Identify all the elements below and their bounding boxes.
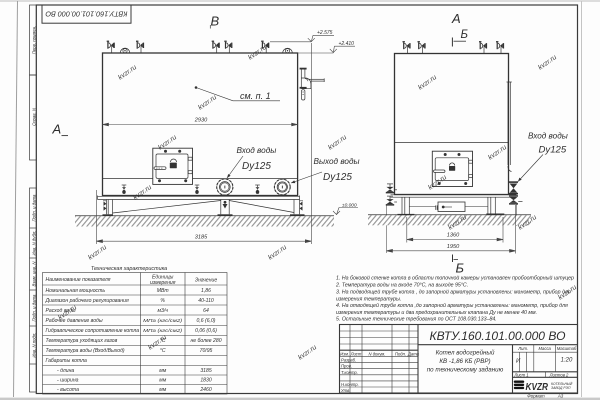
svg-text:- высота: - высота — [57, 387, 79, 393]
svg-text:Т.контр.: Т.контр. — [341, 370, 358, 375]
svg-text:1,86: 1,86 — [201, 288, 211, 294]
svg-text:Номинальная мощность: Номинальная мощность — [46, 288, 106, 294]
svg-text:Подп.: Подп. — [395, 351, 406, 356]
svg-text:Лит.: Лит. — [517, 346, 528, 351]
svg-text:Техническая характеристика: Техническая характеристика — [91, 266, 167, 272]
svg-text:м3/ч: м3/ч — [158, 308, 169, 314]
svg-text:Лист: Лист — [350, 351, 362, 356]
svg-text:1. На боковой стенке котла в: 1. На боковой стенке котла в области топ… — [336, 275, 574, 282]
svg-text:Справ. N: Справ. N — [31, 107, 36, 126]
svg-text:измерения: измерения — [150, 280, 176, 286]
svg-text:Взам. инв. N: Взам. инв. N — [31, 261, 36, 287]
svg-text:Подп. и дата: Подп. и дата — [31, 194, 36, 222]
svg-text:Изм.: Изм. — [340, 351, 349, 356]
svg-text:Н.контр.: Н.контр. — [341, 382, 359, 387]
svg-text:МВт: МВт — [157, 288, 169, 294]
svg-text:см. п. 1: см. п. 1 — [240, 91, 271, 101]
svg-text:1:20: 1:20 — [561, 358, 573, 364]
svg-text:В: В — [211, 14, 220, 29]
svg-text:МПа (кгс/см2): МПа (кгс/см2) — [143, 328, 183, 333]
svg-text:Инв. N дубл.: Инв. N дубл. — [31, 231, 36, 256]
svg-text:А: А — [451, 11, 461, 26]
svg-text:KVZR: KVZR — [526, 381, 549, 393]
svg-text:Разраб.: Разраб. — [341, 358, 356, 363]
svg-text:Б: Б — [461, 29, 469, 41]
svg-text:И: И — [516, 359, 521, 365]
svg-text:Гидравлическое сопротивление к: Гидравлическое сопротивление котла — [46, 328, 140, 334]
svg-text:Рабочее давление воды: Рабочее давление воды — [46, 318, 103, 324]
svg-text:Вход воды: Вход воды — [237, 146, 277, 155]
svg-text:1950: 1950 — [447, 244, 460, 250]
svg-text:Масштаб: Масштаб — [557, 346, 577, 351]
svg-text:4. На отводящей трубе котла ,: 4. На отводящей трубе котла ,до запорной… — [336, 302, 568, 309]
svg-text:64: 64 — [203, 308, 209, 314]
svg-text:Перв. примен.: Перв. примен. — [31, 26, 36, 55]
svg-text:Пров.: Пров. — [341, 364, 352, 369]
svg-text:Подп. и дата: Подп. и дата — [31, 294, 36, 322]
svg-text:Dy125: Dy125 — [323, 172, 352, 183]
svg-text:Наименование показателя: Наименование показателя — [46, 277, 111, 283]
svg-text:Температура уходящих газов: Температура уходящих газов — [46, 338, 118, 344]
svg-text:Котел водогрейный: Котел водогрейный — [436, 350, 495, 357]
svg-text:3185: 3185 — [200, 368, 211, 374]
svg-text:А: А — [52, 122, 62, 137]
svg-text:N докум.: N докум. — [369, 351, 386, 356]
svg-text:5. Остальные технические треб: 5. Остальные технические требования по О… — [336, 317, 497, 323]
svg-text:измерения температуры и два пр: измерения температуры и два предохраните… — [336, 310, 537, 316]
svg-text:3. На подводящей трубе котла: 3. На подводящей трубе котла , до запорн… — [336, 289, 571, 296]
svg-text:Выход воды: Выход воды — [314, 157, 360, 166]
svg-text:±0.000: ±0.000 — [342, 202, 357, 208]
svg-text:Инв. N подл.: Инв. N подл. — [31, 332, 36, 357]
svg-text:2. Температура воды на входе: 2. Температура воды на входе 70°С, на вы… — [335, 283, 468, 289]
svg-text:измерения температуры.: измерения температуры. — [336, 296, 401, 302]
svg-text:Температура воды (Вход/Выход): Температура воды (Вход/Выход) — [46, 348, 125, 354]
svg-text:1830: 1830 — [200, 378, 211, 384]
svg-text:Листов 2: Листов 2 — [549, 372, 569, 377]
svg-text:0,6 (6,0): 0,6 (6,0) — [197, 318, 216, 324]
svg-text:Формат: Формат — [527, 393, 545, 398]
svg-text:Dy125: Dy125 — [242, 161, 271, 172]
svg-text:мм: мм — [159, 378, 166, 384]
svg-text:+2.575: +2.575 — [317, 30, 333, 36]
svg-text:А3: А3 — [557, 393, 564, 398]
svg-text:КВ -1,86 КБ (РВР): КВ -1,86 КБ (РВР) — [439, 358, 490, 365]
svg-text:+2.410: +2.410 — [339, 41, 355, 47]
svg-text:2930: 2930 — [194, 118, 208, 124]
svg-text:Масса: Масса — [539, 346, 552, 351]
svg-text:- длина: - длина — [57, 368, 74, 374]
svg-text:Дата: Дата — [407, 351, 420, 356]
svg-text:Габариты котла: Габариты котла — [46, 358, 87, 364]
svg-text:°С: °С — [160, 348, 166, 354]
svg-text:Значение: Значение — [195, 278, 218, 284]
svg-text:мм: мм — [159, 387, 166, 393]
svg-text:- ширина: - ширина — [57, 378, 79, 384]
svg-text:не более 280: не более 280 — [190, 338, 221, 344]
svg-text:Вход воды: Вход воды — [528, 132, 568, 141]
svg-text:Dy125: Dy125 — [539, 145, 567, 156]
svg-text:Утв.: Утв. — [341, 388, 351, 393]
svg-text:по техническому заданию: по техническому заданию — [427, 367, 504, 374]
svg-text:2460: 2460 — [199, 387, 211, 393]
svg-text:3185: 3185 — [195, 234, 208, 240]
svg-text:40-110: 40-110 — [198, 298, 214, 304]
svg-text:КВТУ.160.101.00.000 ВО: КВТУ.160.101.00.000 ВО — [430, 329, 566, 343]
svg-text:0,06 (0,6): 0,06 (0,6) — [195, 328, 217, 334]
svg-text:мм: мм — [159, 368, 166, 374]
svg-text:Диапазон рабочего регулировани: Диапазон рабочего регулирования — [45, 298, 129, 304]
svg-text:1360: 1360 — [447, 233, 460, 239]
svg-text:Б: Б — [456, 261, 465, 276]
svg-text:КВТУ.160.101.00.000 ВО: КВТУ.160.101.00.000 ВО — [45, 9, 127, 18]
svg-text:%: % — [160, 298, 165, 304]
svg-text:70/95: 70/95 — [200, 348, 213, 354]
svg-text:МПа (кгс/см2): МПа (кгс/см2) — [143, 318, 183, 323]
svg-text:Лист 1: Лист 1 — [513, 372, 528, 377]
svg-text:ЗАВОД РЭП: ЗАВОД РЭП — [551, 386, 571, 390]
